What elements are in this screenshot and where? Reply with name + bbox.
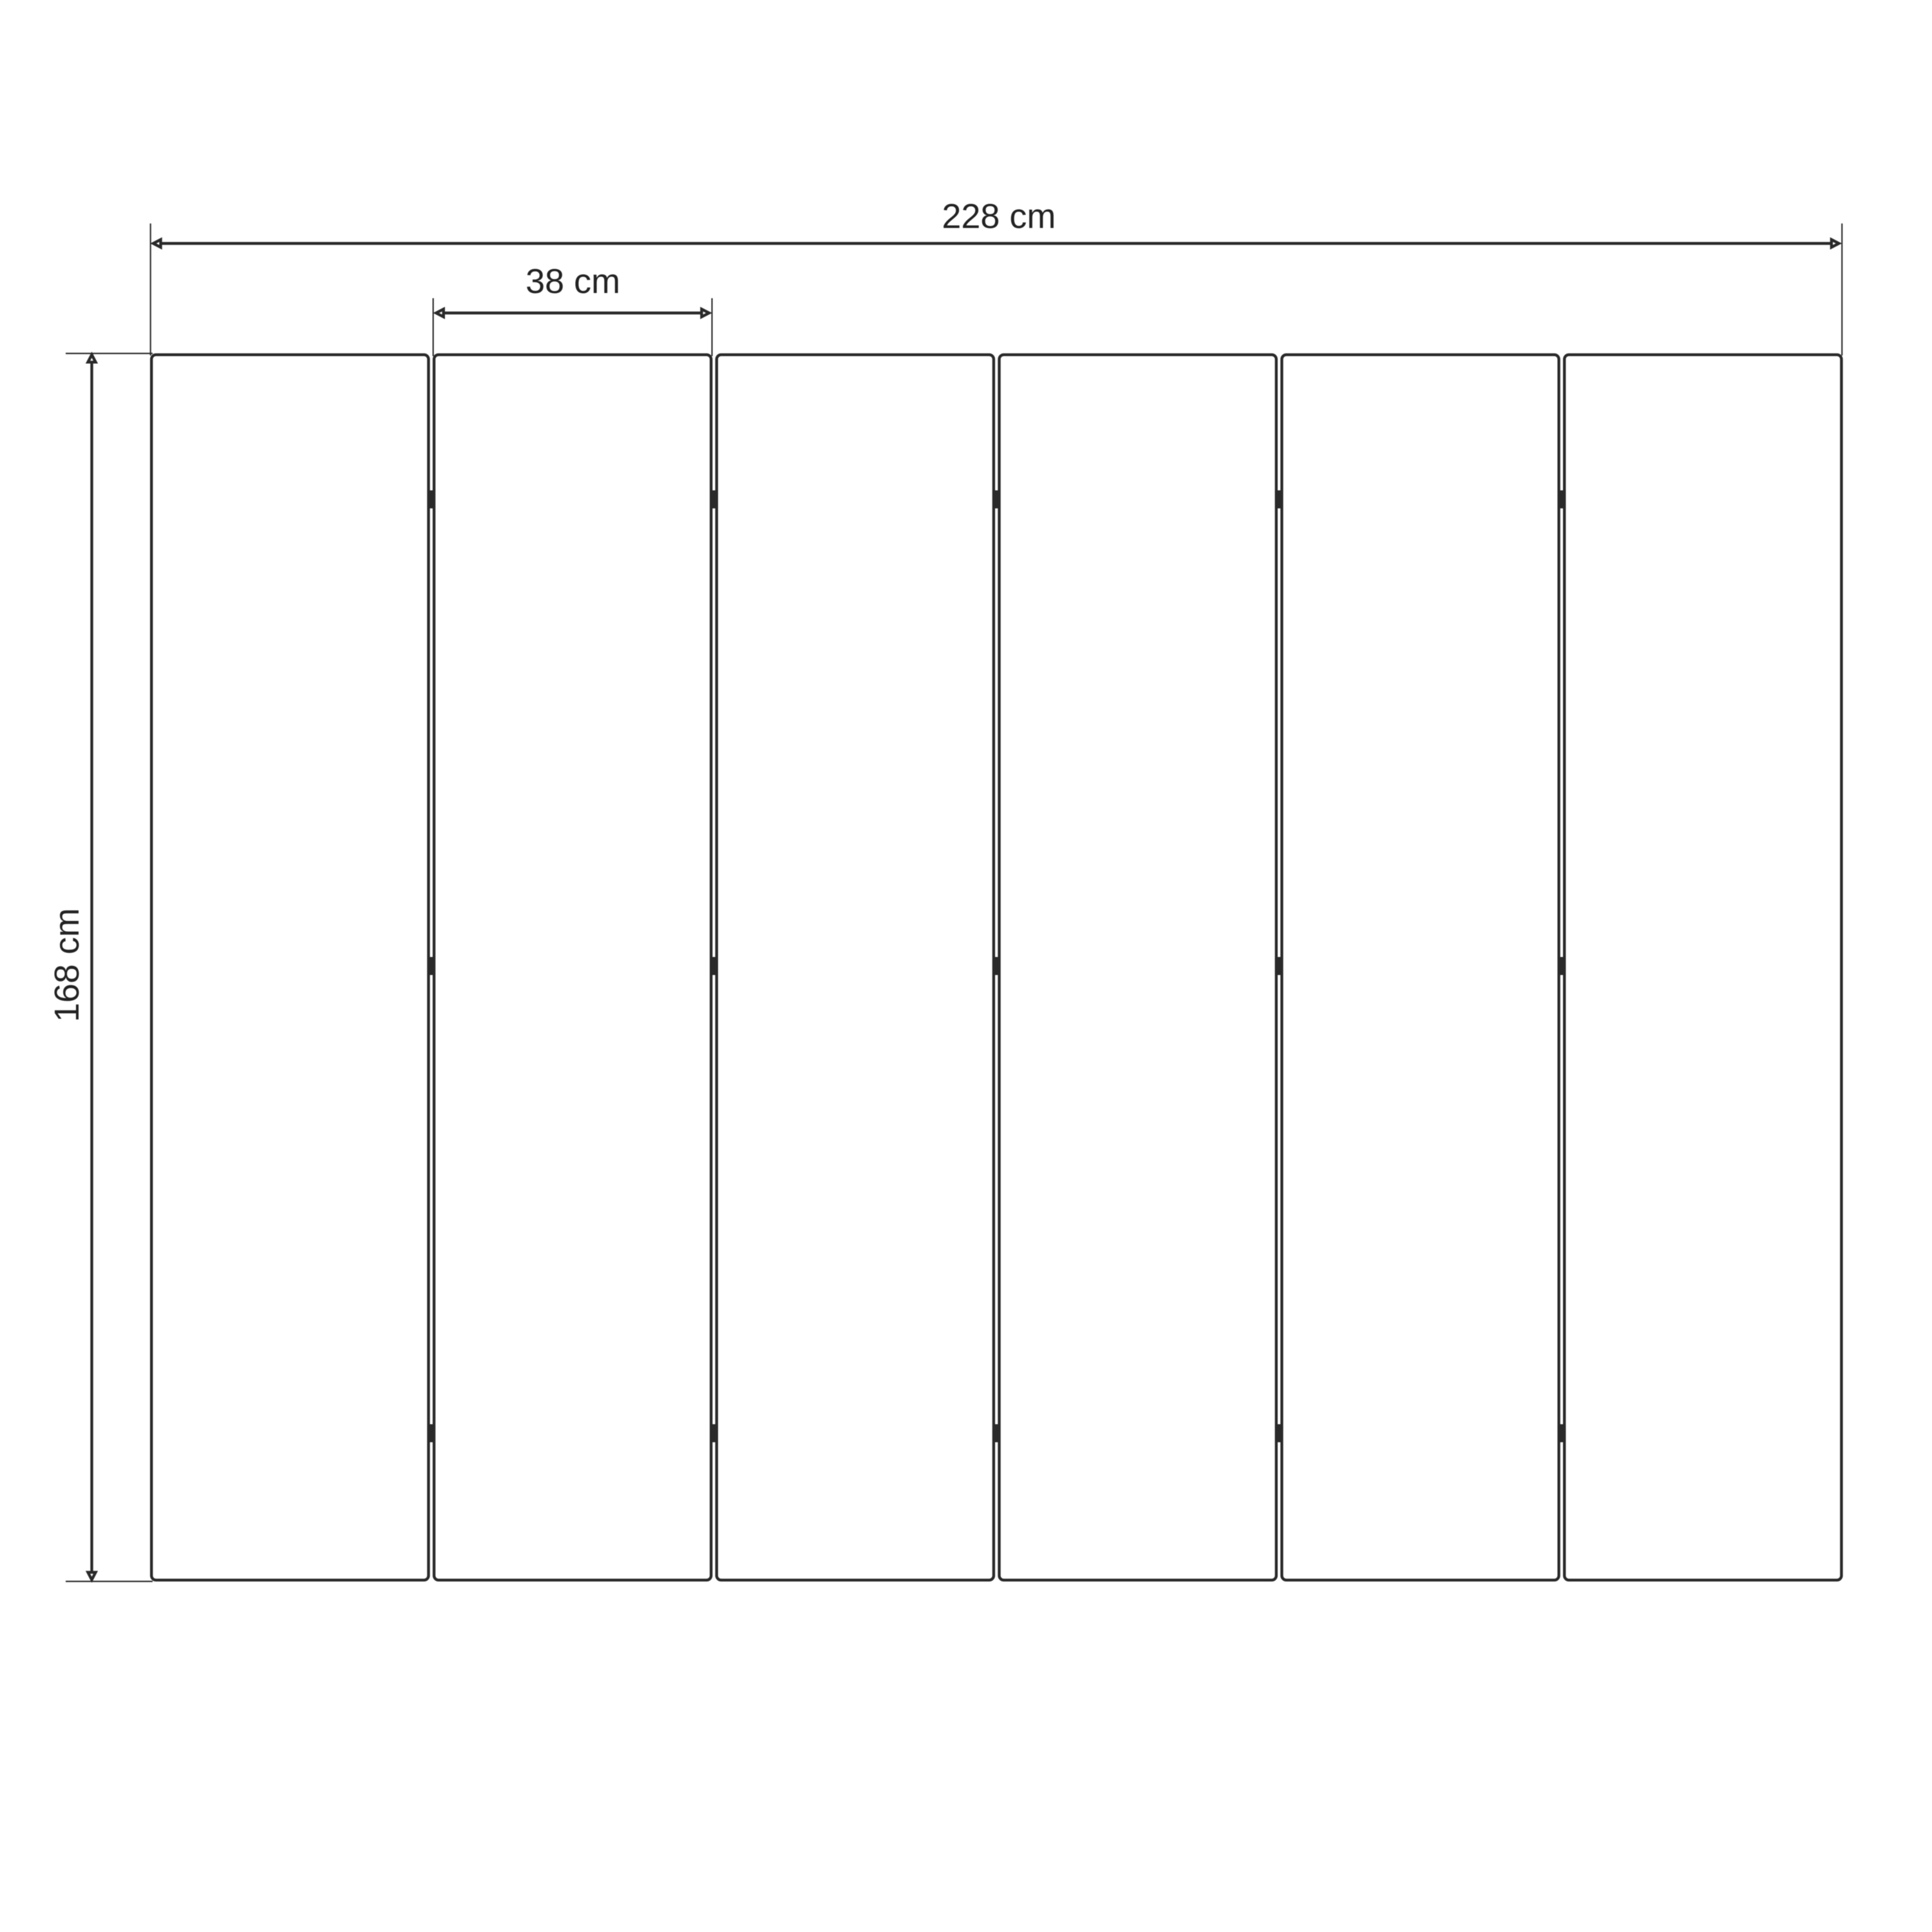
svg-text:38 cm: 38 cm [526, 262, 620, 301]
svg-text:168 cm: 168 cm [48, 908, 86, 1022]
svg-text:228 cm: 228 cm [942, 197, 1056, 236]
